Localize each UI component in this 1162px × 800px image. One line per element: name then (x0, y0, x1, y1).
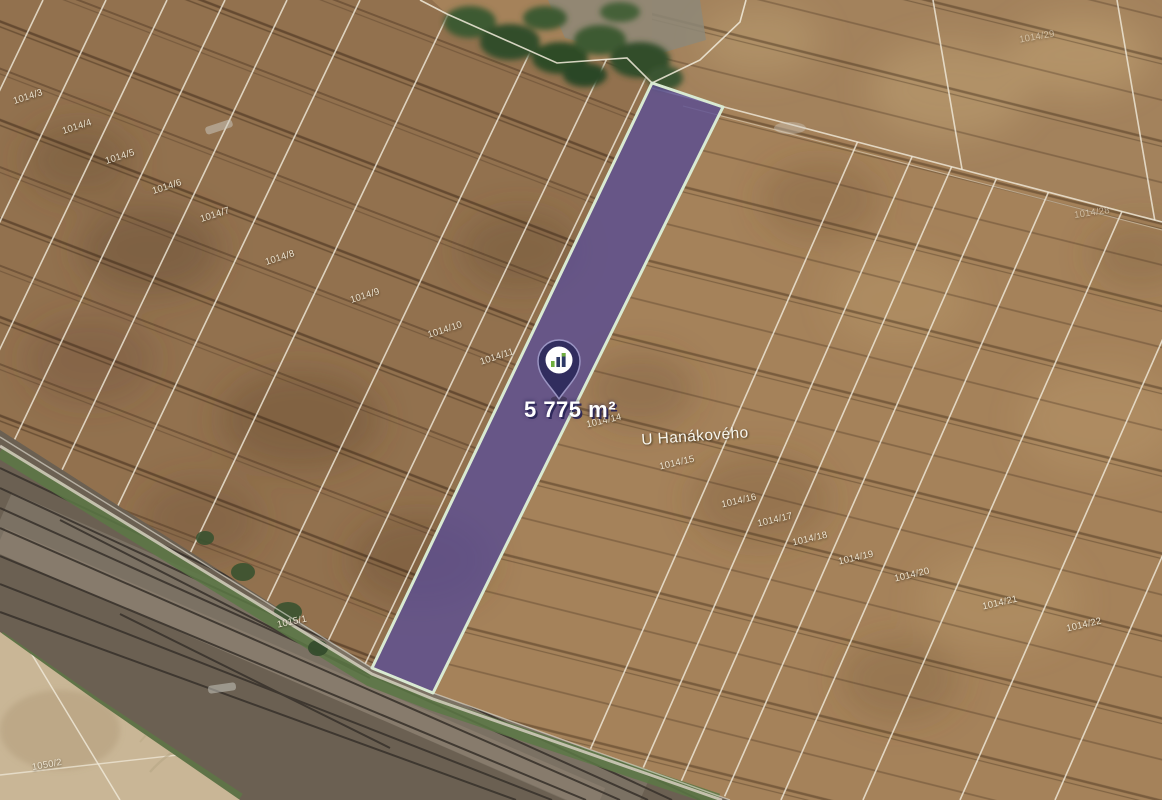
area-label: 5 775 m² (524, 397, 616, 423)
satellite-map[interactable]: 1014/31014/41014/51014/61014/71014/81014… (0, 0, 1162, 800)
